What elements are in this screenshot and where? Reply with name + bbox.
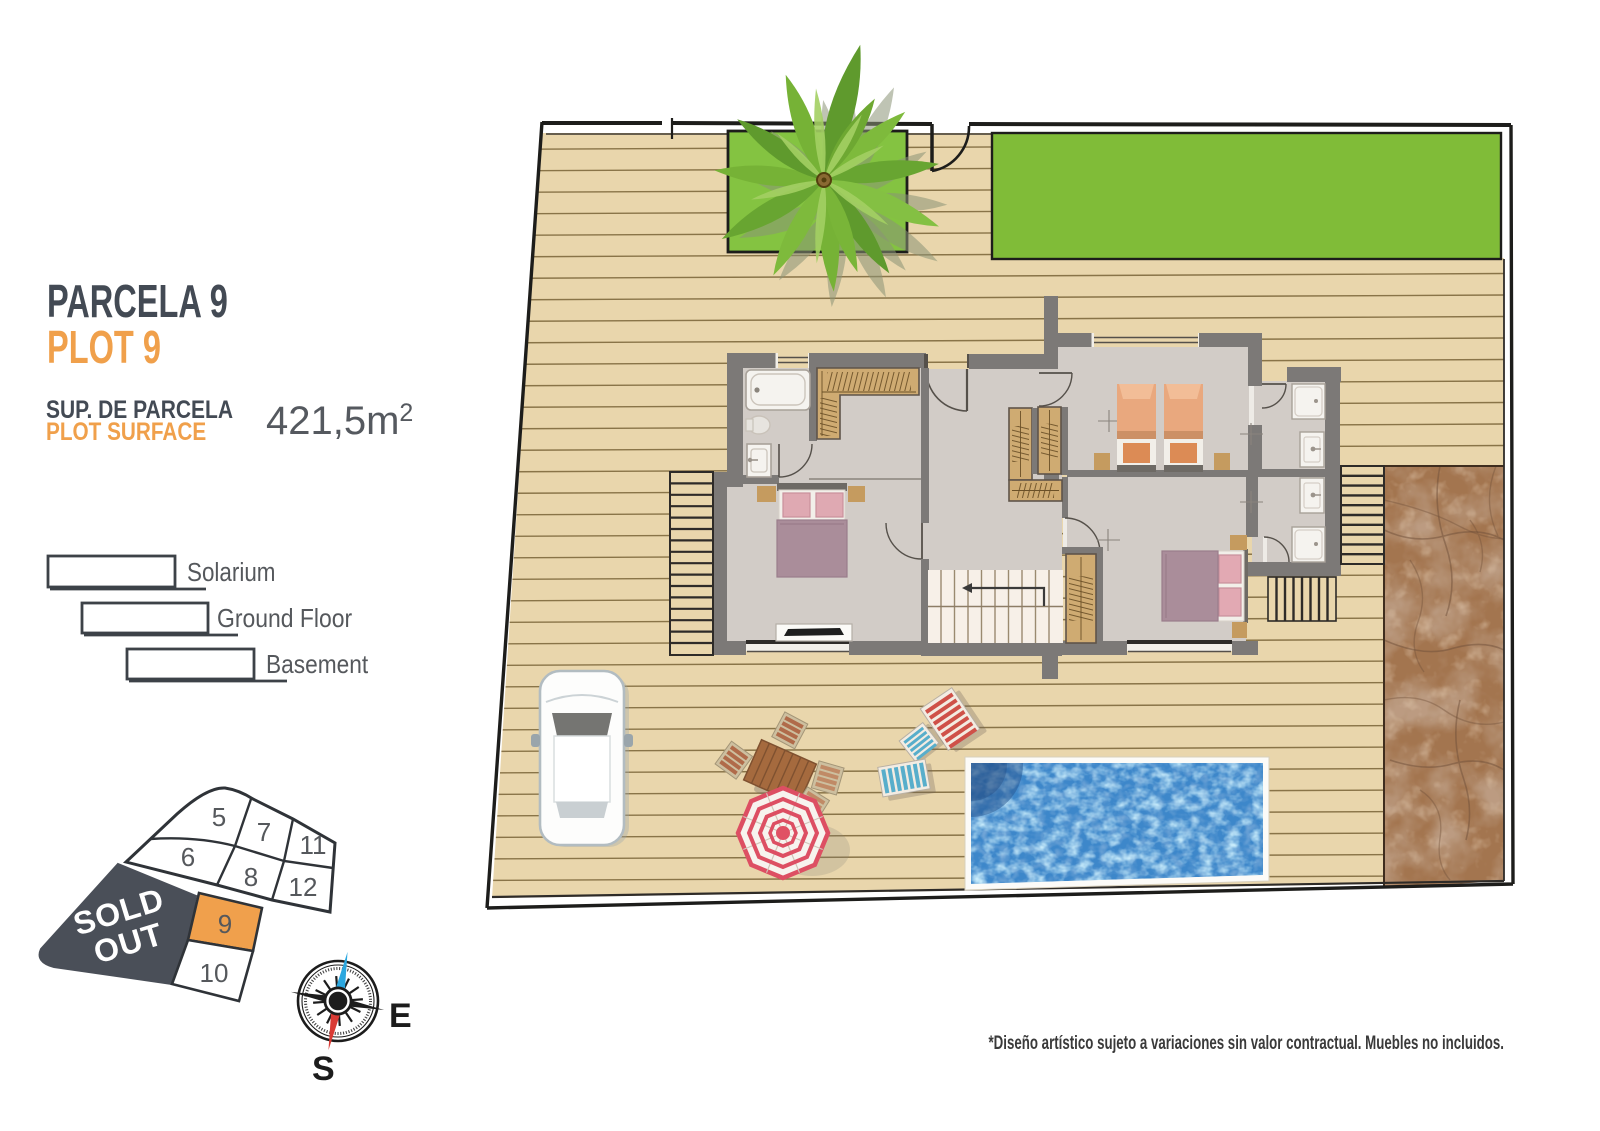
svg-text:9: 9 [218, 909, 232, 939]
svg-text:7: 7 [257, 817, 271, 847]
svg-text:PLOT SURFACE: PLOT SURFACE [46, 417, 206, 445]
svg-text:8: 8 [244, 862, 258, 892]
svg-text:11: 11 [300, 830, 327, 860]
svg-text:Solarium: Solarium [187, 559, 275, 588]
svg-text:*Diseño artístico sujeto a var: *Diseño artístico sujeto a variaciones s… [988, 1031, 1504, 1053]
svg-text:6: 6 [181, 842, 195, 872]
svg-text:S: S [312, 1050, 335, 1088]
svg-text:PARCELA 9: PARCELA 9 [47, 275, 228, 327]
svg-text:Basement: Basement [266, 651, 368, 680]
svg-text:Ground Floor: Ground Floor [217, 605, 352, 633]
svg-text:10: 10 [200, 958, 229, 988]
svg-text:PLOT 9: PLOT 9 [47, 321, 161, 373]
svg-text:12: 12 [289, 872, 318, 902]
svg-text:E: E [389, 997, 412, 1035]
svg-text:421,5m2: 421,5m2 [266, 399, 413, 443]
svg-text:5: 5 [212, 802, 226, 832]
